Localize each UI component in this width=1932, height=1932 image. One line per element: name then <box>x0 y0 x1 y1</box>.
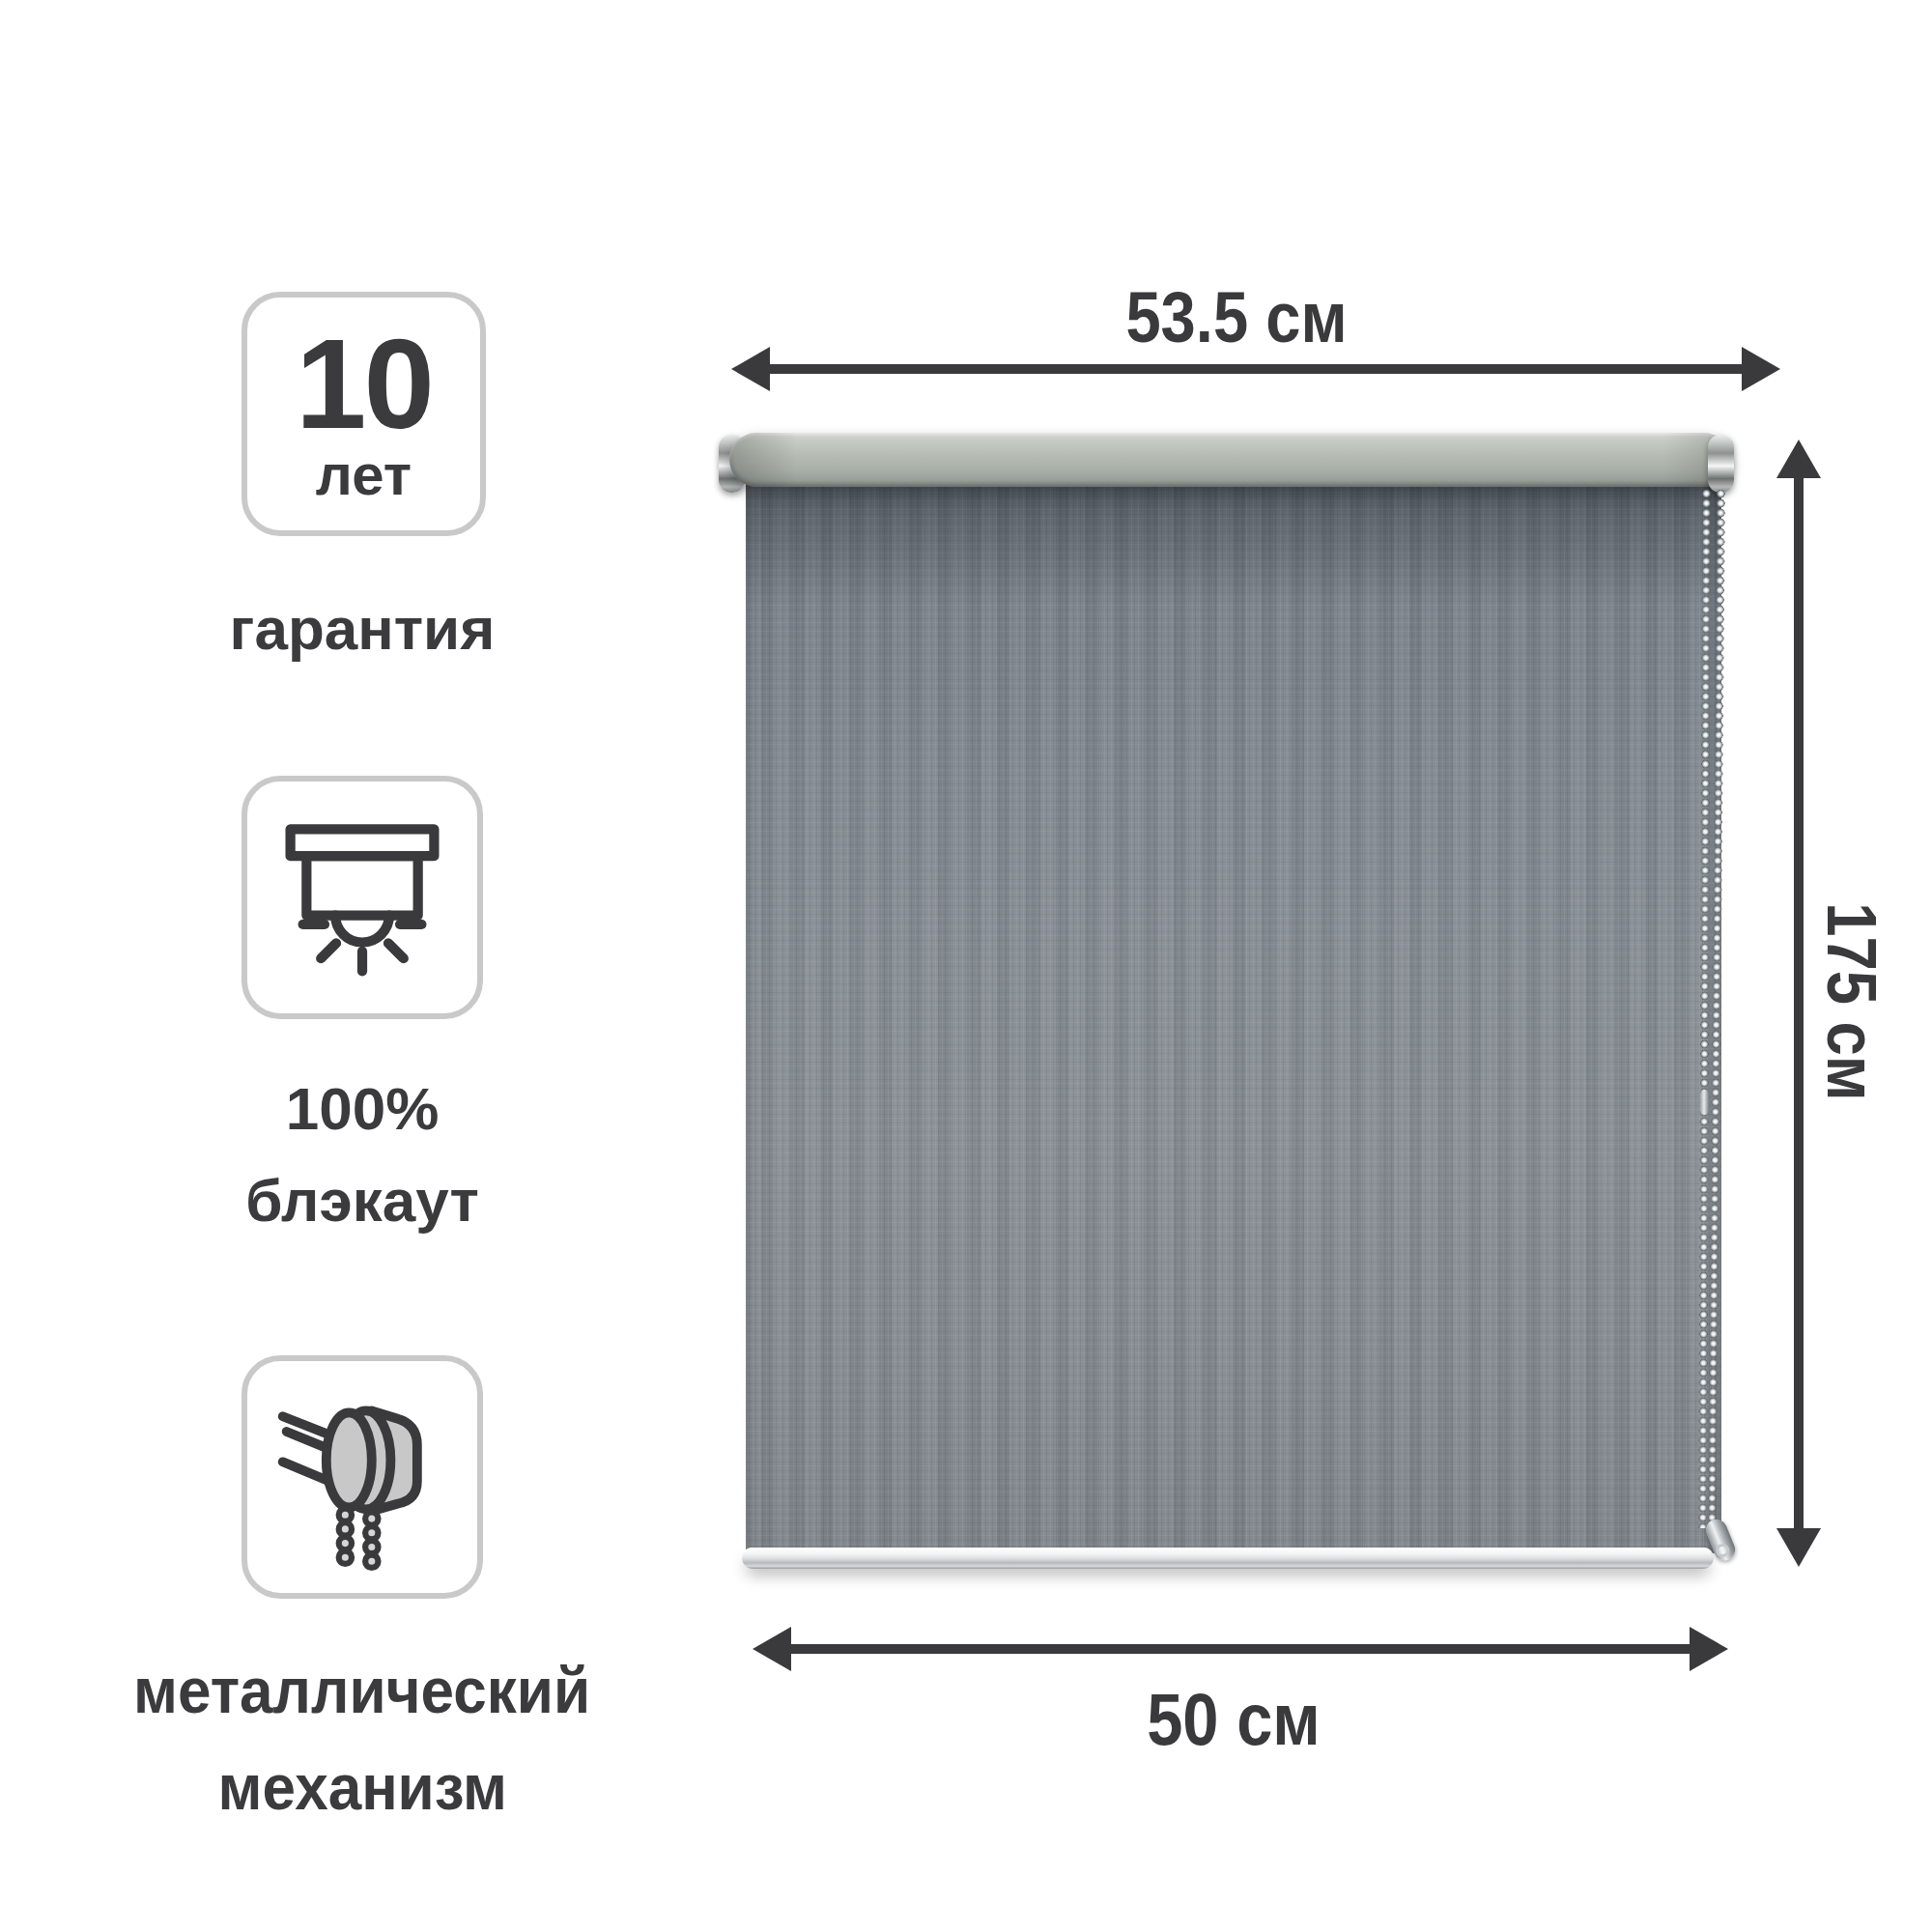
arrow-head-right-icon <box>1690 1627 1728 1671</box>
roller-blind-fabric <box>746 479 1721 1553</box>
mechanism-label: металлический механизм <box>24 1642 700 1835</box>
arrow-head-right-icon <box>1742 347 1780 391</box>
roller-blind-cassette-tube <box>729 433 1731 487</box>
mechanism-badge <box>241 1355 483 1599</box>
blackout-blind-icon <box>272 803 452 992</box>
bead-chain-connector <box>1700 1090 1709 1115</box>
warranty-years-unit: лет <box>316 446 412 504</box>
arrow-head-down-icon <box>1776 1528 1821 1567</box>
warranty-badge: 10 лет <box>241 292 486 536</box>
arrow-shaft <box>1794 472 1804 1534</box>
cassette-end-cap-right <box>1708 435 1734 493</box>
warranty-label: гарантия <box>24 582 700 674</box>
blackout-label-line2: блэкаут <box>24 1154 700 1246</box>
roller-blind-bottom-bar <box>742 1548 1714 1569</box>
warranty-years-value: 10 <box>296 324 432 444</box>
arrow-shaft <box>785 1644 1695 1654</box>
fabric-width-arrow <box>753 1627 1728 1671</box>
blackout-label: 100% блэкаут <box>24 1063 700 1246</box>
fabric-width-label: 50 см <box>1135 1683 1332 1756</box>
blackout-badge <box>241 776 483 1019</box>
chain-mechanism-icon <box>268 1382 457 1572</box>
arrow-shaft <box>764 364 1747 374</box>
mechanism-label-line2: механизм <box>217 1739 506 1835</box>
blackout-label-line1: 100% <box>24 1063 700 1154</box>
cassette-width-label: 53.5 см <box>1111 282 1362 354</box>
mechanism-label-line1: металлический <box>134 1642 591 1739</box>
product-infographic: 10 лет гарантия 100% блэкаут <box>0 0 1932 1932</box>
height-label: 175 см <box>1817 889 1887 1114</box>
